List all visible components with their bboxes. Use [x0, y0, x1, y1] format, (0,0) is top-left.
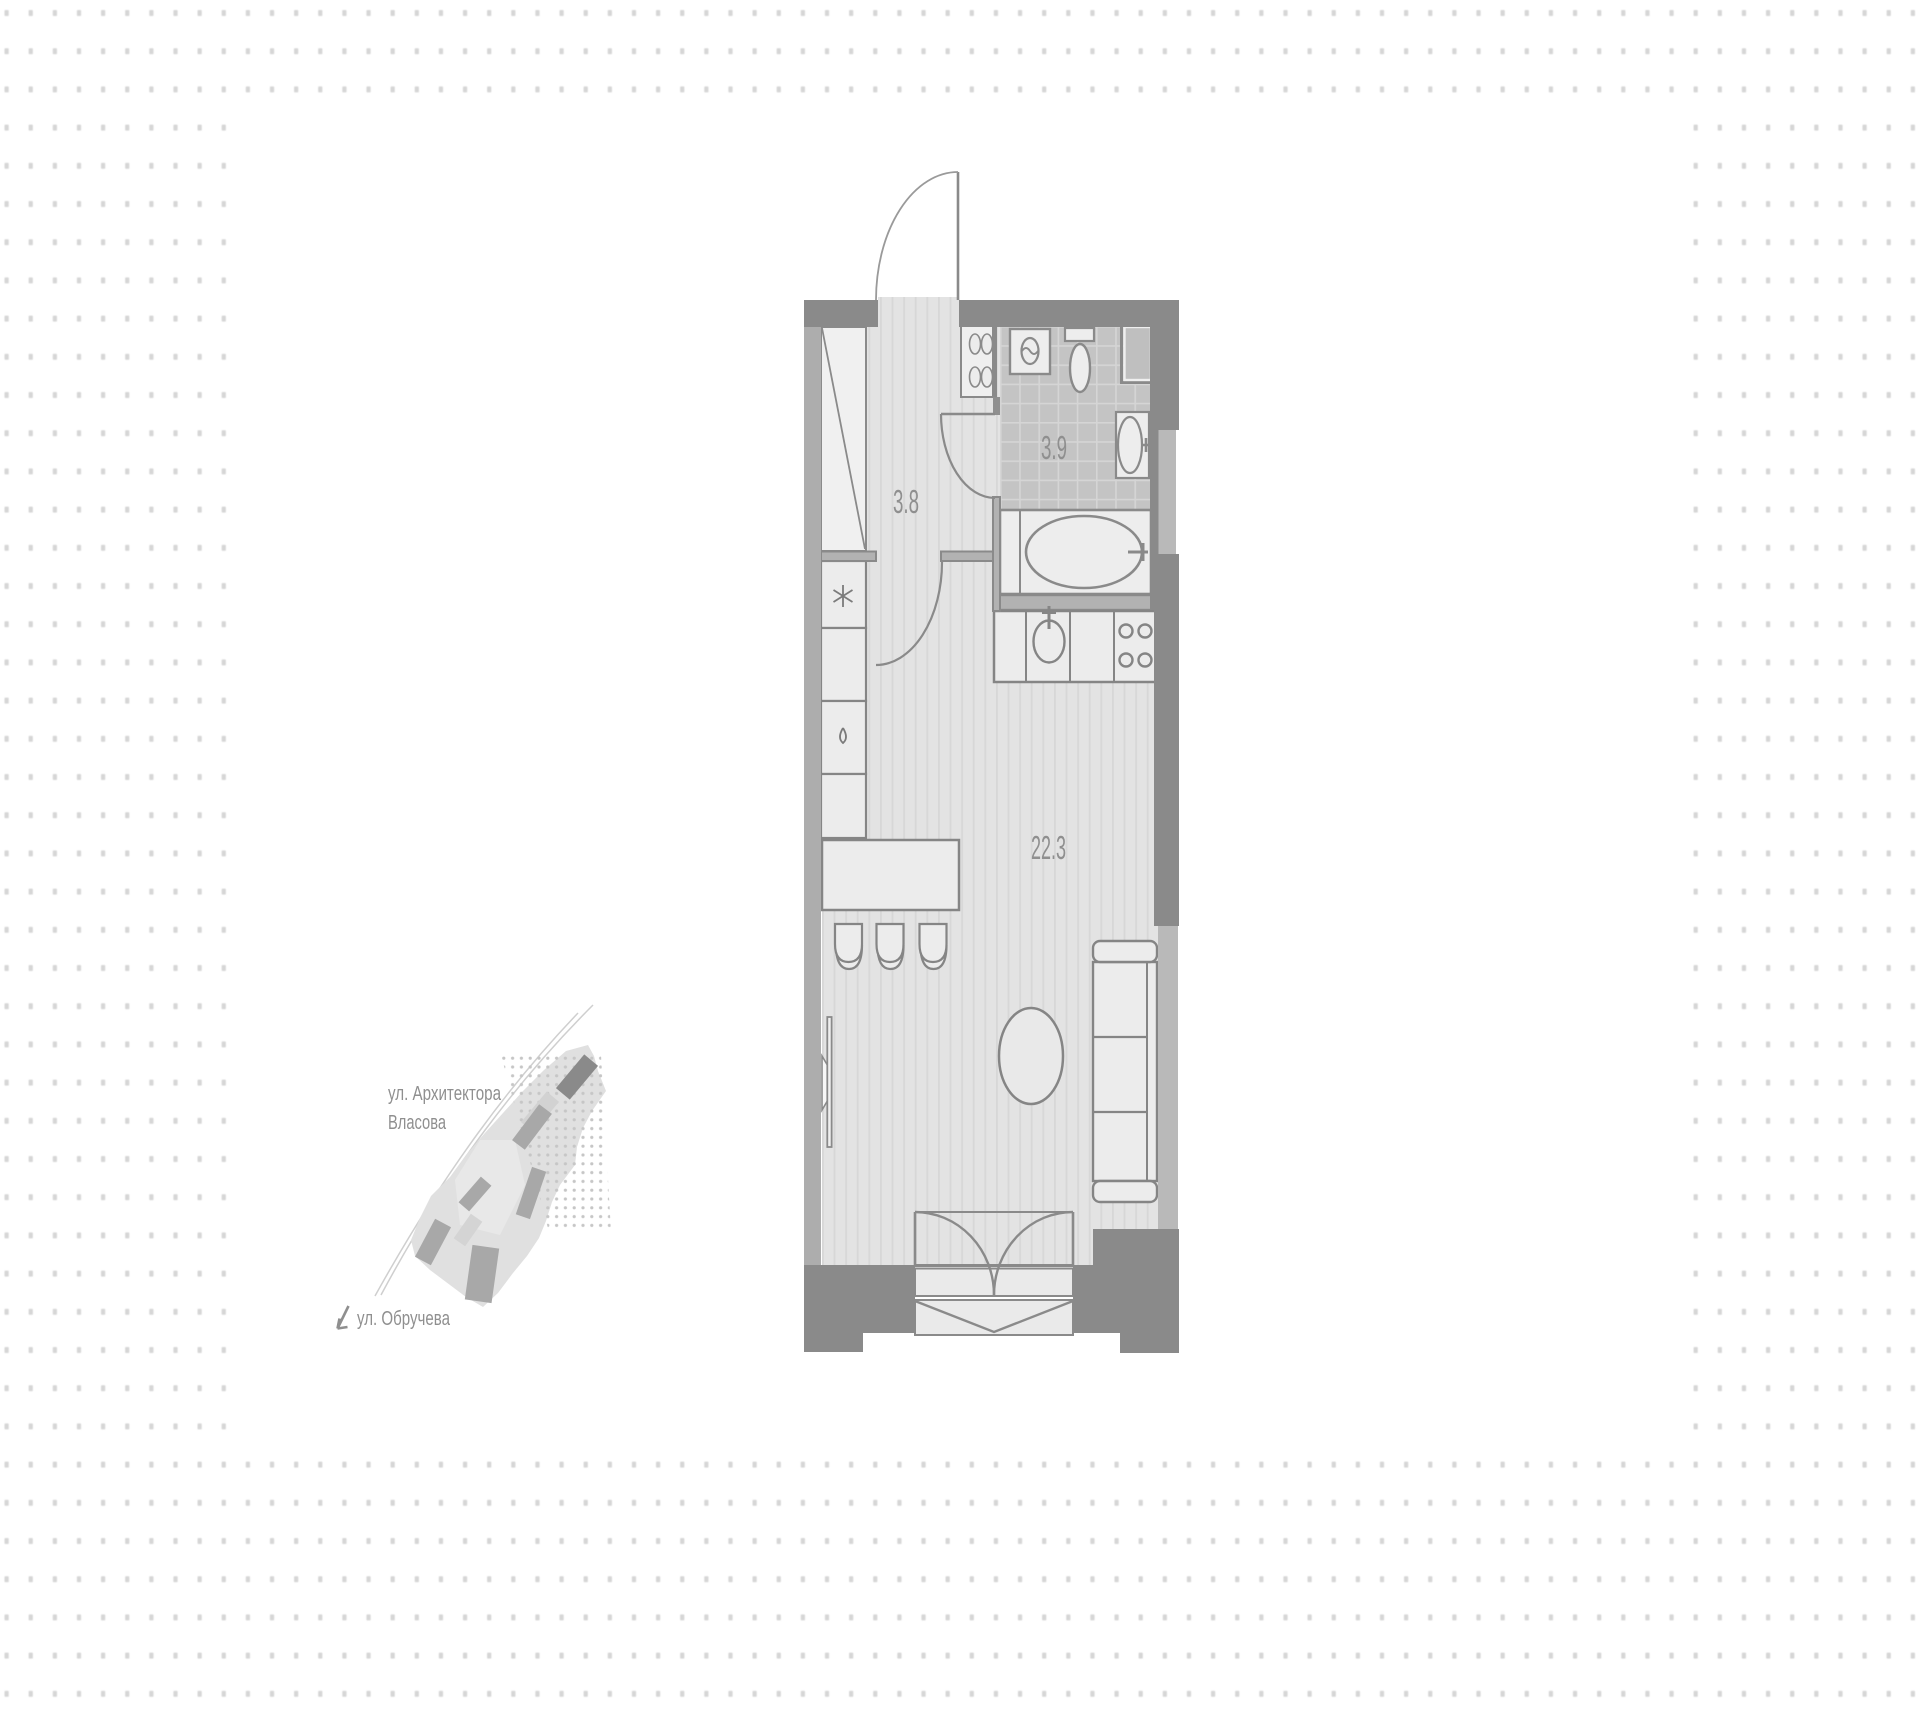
- svg-text:3.9: 3.9: [1041, 429, 1067, 466]
- svg-text:Власова: Власова: [388, 1112, 447, 1134]
- svg-text:ул. Обручева: ул. Обручева: [357, 1308, 451, 1330]
- svg-text:ул. Архитектора: ул. Архитектора: [388, 1083, 502, 1105]
- svg-text:22.3: 22.3: [1031, 829, 1066, 866]
- svg-text:3.8: 3.8: [893, 483, 919, 520]
